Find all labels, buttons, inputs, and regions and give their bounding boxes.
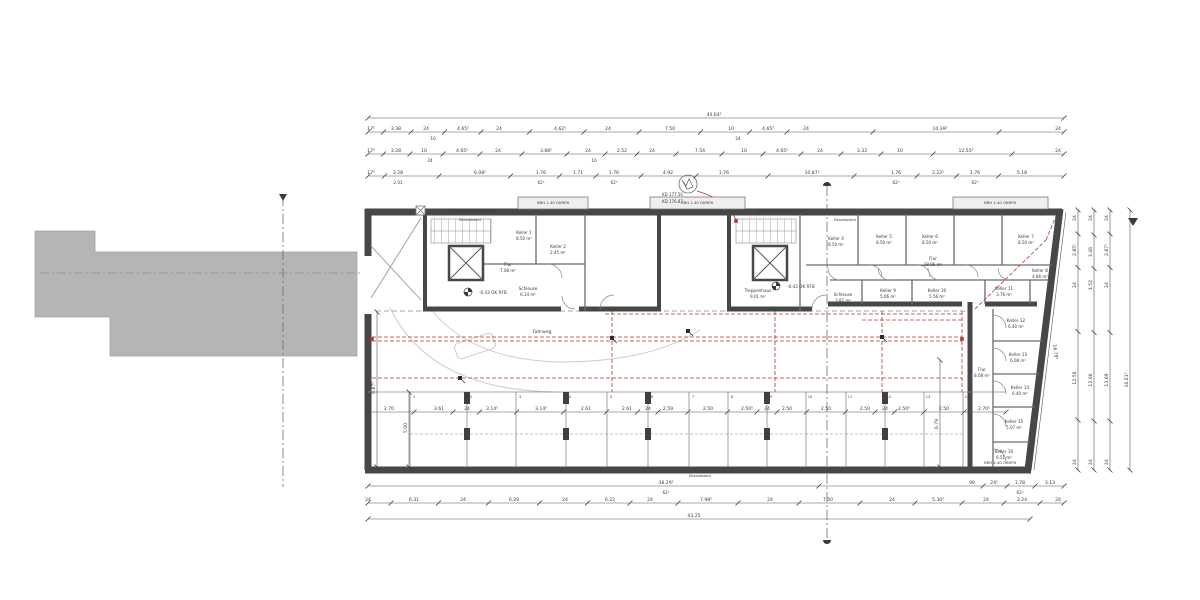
structural-column: [645, 392, 651, 404]
room-name: Keller 5: [876, 234, 892, 239]
dim-label: 24: [1104, 215, 1110, 221]
dim-label: 3.33: [857, 148, 867, 154]
dim-label: 2.50: [939, 406, 949, 412]
annotation-label: Sicherheitstreppenraum: [450, 208, 501, 213]
dim-label: 4.65⁵: [457, 126, 469, 132]
dim-label: 1.76: [536, 170, 546, 176]
dimensions-and-labels: 44.64⁵17⁵3.38244.65⁵244.62⁵247.50104.65⁵…: [365, 112, 1132, 522]
dim-label: 10: [421, 148, 427, 154]
dim-label: 4.65⁵: [762, 126, 774, 132]
stair-cores: [431, 219, 796, 280]
room-area: 3.76 m²: [996, 292, 1012, 297]
room-name: Keller 9: [880, 288, 896, 293]
dim-label: 6.79: [934, 419, 940, 429]
stall-number: 7: [692, 395, 694, 399]
room-area: 8.50 m²: [828, 242, 844, 247]
tree-icon-inner: [682, 179, 693, 189]
stall-number: 6: [651, 395, 654, 399]
dim-label: 24: [983, 497, 989, 503]
turning-arc: [390, 308, 555, 392]
dim-label: 12.56: [1072, 371, 1078, 384]
dim-label: 44.64⁵: [707, 112, 722, 118]
turning-arc: [430, 308, 700, 362]
dim-label: 4.62⁵: [554, 126, 566, 132]
room-name: Keller 13: [1009, 352, 1028, 357]
stall-number: 2: [470, 395, 472, 399]
red-marker: [960, 337, 964, 341]
gray-building-footprint: [35, 231, 357, 356]
dim-label: 1.78: [1015, 480, 1025, 486]
door-arc: [548, 264, 562, 278]
dim-label: 3.88⁵: [540, 148, 552, 154]
dim-label: 7.50: [665, 126, 675, 132]
dim-label: 24: [562, 497, 568, 503]
dim-label: 24: [1072, 215, 1078, 221]
room-area: 8.50 m²: [876, 240, 892, 245]
stall-number: 5: [610, 395, 612, 399]
dim-label: 1.76: [609, 170, 619, 176]
dim-label: 7.54: [695, 148, 705, 154]
dim-label: 7.50: [823, 497, 833, 503]
room-name: Flur: [504, 262, 512, 267]
dim-label: 17⁵: [367, 170, 375, 176]
room-name: Keller 1: [516, 230, 532, 235]
door-arc: [993, 315, 1006, 328]
structural-column: [563, 392, 569, 404]
dim-label: 2.50: [821, 406, 831, 412]
dim-label: 6.22: [605, 497, 615, 503]
dim-label: 3.28: [391, 148, 401, 154]
dim-label: 3.14⁵: [535, 406, 547, 412]
dim-label: 2.59: [663, 406, 673, 412]
room-area: 8.50 m²: [516, 236, 532, 241]
dim-label: 1.76: [970, 170, 980, 176]
dim-label: 24: [1104, 282, 1110, 288]
annotation-label: Brandwand: [459, 217, 481, 222]
dim-label: 10: [728, 126, 734, 132]
level-marker-icon: [464, 292, 468, 296]
stall-number: 8: [731, 395, 734, 399]
dim-label: 2.70: [384, 406, 394, 412]
dim-label: 3.24: [1017, 497, 1027, 503]
stall-number: 4: [569, 395, 572, 399]
dim-label: 2.22⁵: [932, 170, 944, 176]
annotation-label: BRH 1.40 OKRFB: [984, 460, 1016, 465]
dim-label: 17⁵: [367, 148, 375, 154]
structural-column: [563, 428, 569, 440]
survey-flag-stem: [612, 338, 617, 343]
neighbor-building-mass: [35, 231, 365, 356]
section-marker-icon: [279, 194, 287, 201]
red-marker: [370, 337, 374, 341]
dim-label: 24: [1055, 497, 1061, 503]
dim-label: 1.71: [573, 170, 583, 176]
door-arc: [993, 348, 1006, 361]
ramp-opening: [362, 256, 373, 314]
dim-label: 24: [817, 148, 823, 154]
structural-column: [464, 392, 470, 404]
stall-number: 14: [965, 395, 970, 399]
dim-label: 10: [897, 148, 903, 154]
dim-label: 4.65⁵: [456, 148, 468, 154]
dim-label: 1.52: [1088, 280, 1094, 290]
annotation-label: Brandwand: [834, 217, 856, 222]
annotation-label: Brandwand: [689, 473, 711, 478]
dim-label: 3.61: [434, 406, 444, 412]
dim-label: 24: [585, 148, 591, 154]
level-markers: [464, 282, 780, 296]
dim-label: 24: [1088, 215, 1094, 221]
room-area: 2.45 m²: [550, 250, 566, 255]
stall-number: 1: [413, 395, 415, 399]
dim-label: 3.13: [1045, 480, 1055, 486]
floor-plan-drawing: 44.64⁵17⁵3.38244.65⁵244.62⁵247.50104.65⁵…: [0, 0, 1200, 600]
wall-slanted-right: [1028, 209, 1060, 470]
dim-label: 5.18: [1017, 170, 1027, 176]
dim-label: 6.08⁵: [474, 170, 486, 176]
dim-label: 9.87⁵: [371, 382, 377, 394]
room-area: 6.08 m²: [1010, 358, 1026, 363]
annotation-label: -0.43 OK RFB: [787, 284, 815, 289]
dim-label: 24: [1104, 459, 1110, 465]
room-name: Keller 7: [1018, 234, 1034, 239]
structural-column: [882, 392, 888, 404]
room-name: Schleuse: [834, 292, 853, 297]
red-marker: [734, 219, 738, 223]
dim-label: 3.38: [391, 126, 401, 132]
dim-label: 2.50⁵: [898, 406, 910, 412]
annotation-label: KD 176.87: [662, 199, 683, 204]
room-name: Keller 12: [1007, 318, 1026, 323]
room-area: 5.07 m²: [1006, 425, 1022, 430]
structural-column: [464, 428, 470, 440]
dim-label: 24: [605, 126, 611, 132]
dim-label: 13.69: [1104, 373, 1110, 386]
dim-label: 3.14⁵: [486, 406, 498, 412]
annotation-label: KD 177.50: [662, 192, 683, 197]
door-arc: [828, 268, 840, 280]
room-name: Keller 8: [1032, 268, 1048, 273]
dim-label: 38.29⁵: [659, 480, 674, 486]
dim-label: 24: [803, 126, 809, 132]
structural-column: [764, 392, 770, 404]
room-area: 4.86 m²: [1032, 274, 1048, 279]
dim-label: 5.00: [403, 423, 409, 433]
room-area: 5.56 m²: [929, 294, 945, 299]
dim-label: 24: [365, 497, 371, 503]
dim-label: 10: [741, 148, 747, 154]
dim-label: 24: [889, 497, 895, 503]
dim-sublabel: 62⁵: [610, 180, 617, 185]
dim-label: 24: [767, 497, 773, 503]
dim-label: 1.76: [891, 170, 901, 176]
dim-label: 17⁵: [367, 126, 375, 132]
dim-label: 4.65⁵: [776, 148, 788, 154]
door-arc: [812, 295, 826, 309]
dim-label: 16.61⁵: [1124, 372, 1130, 387]
section-marker-icon: [823, 540, 831, 544]
dim-label: 6.31: [409, 497, 419, 503]
stall-number: 3: [519, 395, 521, 399]
dim-label: 24: [423, 126, 429, 132]
dim-label: 2.87⁵: [1104, 244, 1110, 256]
partition-walls: [368, 214, 1052, 467]
room-area: 6.40 m²: [1008, 324, 1024, 329]
dim-label: 24: [1055, 126, 1061, 132]
dim-label: 12.06: [1088, 373, 1094, 386]
room-name: Keller 16: [995, 449, 1014, 454]
structural-column: [882, 428, 888, 440]
dim-label: 2.70⁵: [978, 406, 990, 412]
room-area: 6.14 m²: [520, 292, 536, 297]
stall-number: 11: [848, 395, 853, 399]
dim-label: 6.29: [509, 497, 519, 503]
dim-label: 7.98⁵: [700, 497, 712, 503]
room-name: Keller 14: [1011, 385, 1030, 390]
dim-label: 10.87⁵: [805, 170, 820, 176]
dim-label: 24: [647, 497, 653, 503]
dim-label: 16.79⁵: [1051, 344, 1059, 360]
dim-sublabel: 62⁵: [1016, 490, 1023, 495]
floor-plan-page: 44.64⁵17⁵3.38244.65⁵244.62⁵247.50104.65⁵…: [0, 0, 1200, 600]
level-marker-icon: [776, 282, 780, 286]
room-name: Schleuse: [519, 286, 538, 291]
stall-number: 10: [808, 395, 813, 399]
dim-sublabel: 24: [427, 158, 433, 163]
room-name: Flur: [978, 367, 986, 372]
car-outline: [454, 332, 497, 360]
room-area: 9.01 m²: [750, 294, 766, 299]
stall-number: 9: [770, 395, 773, 399]
room-area: 8.50 m²: [1018, 240, 1034, 245]
room-area: 8.50 m²: [922, 240, 938, 245]
dim-label: 2.50: [860, 406, 870, 412]
dim-label: 12.55⁵: [959, 148, 974, 154]
room-area: 18.96 m²: [924, 262, 943, 267]
structural-column: [764, 428, 770, 440]
dim-sublabel: 62⁵: [892, 180, 899, 185]
stall-number: 13: [926, 395, 931, 399]
dim-label: 98: [969, 480, 975, 486]
annotation-label: BRH 1.40 OKRFB: [984, 200, 1016, 205]
dim-label: 24: [649, 148, 655, 154]
dim-label: 24: [1088, 459, 1094, 465]
ramp-line: [371, 218, 421, 298]
annotation-label: BRH 1.40 OKRFB: [681, 200, 713, 205]
dim-label: 4.92: [663, 170, 673, 176]
dim-label: 2.52: [617, 148, 627, 154]
dim-label: 2.61: [581, 406, 591, 412]
annotation-label: BRH 1.40 OKRFB: [537, 200, 569, 205]
dim-sublabel: 62⁵: [971, 180, 978, 185]
annotation-label: Sicherheitstreppenraum: [757, 208, 808, 213]
dim-label: 24¹: [990, 480, 998, 486]
dim-sublabel: 24: [735, 136, 741, 141]
door-arc: [562, 296, 575, 309]
dim-label: 24: [1055, 148, 1061, 154]
garage-sweeps: [390, 308, 700, 392]
level-marker-icon: [772, 286, 776, 290]
dim-sublabel: 62⁵: [537, 180, 544, 185]
room-name: Keller 4: [828, 236, 844, 241]
room-name: Keller 15: [1005, 419, 1024, 424]
dim-label: 2.50⁵: [741, 406, 753, 412]
room-area: 3.87 m²: [835, 298, 851, 303]
room-name: Keller 6: [922, 234, 938, 239]
room-name: Keller 10: [928, 288, 947, 293]
room-area: 5.06 m²: [880, 294, 896, 299]
door-arc: [966, 265, 978, 277]
dim-label: 3.46: [1088, 247, 1094, 257]
dim-label: 43.25: [687, 513, 700, 519]
annotation-label: Fahrweg: [533, 329, 552, 335]
section-marker-icon: [823, 182, 831, 186]
room-area: 6.40 m²: [1012, 391, 1028, 396]
dim-sublabel: 10: [591, 158, 597, 163]
ramp-line: [371, 246, 421, 300]
section-lines: [279, 182, 1138, 544]
dim-sublabel: 10: [430, 136, 436, 141]
room-name: Flur: [929, 256, 937, 261]
level-marker-icon: [468, 288, 472, 292]
dim-sublabel: 2.01: [393, 180, 403, 185]
room-name: Keller 11: [995, 286, 1014, 291]
dim-label: 2.85⁵: [1072, 244, 1078, 256]
room-name: Keller 2: [550, 244, 566, 249]
benchmark-icon: [1128, 218, 1138, 226]
dim-label: 24: [460, 497, 466, 503]
annotation-label: -0.43 OK RFB: [479, 290, 507, 295]
dim-label: 24: [1072, 282, 1078, 288]
room-area: 7.08 m²: [500, 268, 516, 273]
dim-label: 2.61: [622, 406, 632, 412]
dim-sublabel: 62⁵: [662, 490, 669, 495]
dim-label: 24: [496, 126, 502, 132]
survey-flag-stem: [460, 378, 465, 383]
dim-label: 24: [495, 148, 501, 154]
dim-label: 5.30⁵: [932, 497, 944, 503]
door-arc: [998, 268, 1010, 280]
room-area: 8.08 m²: [974, 373, 990, 378]
room-name: Treppenhaus: [744, 288, 772, 293]
dim-label: 24: [1072, 459, 1078, 465]
dim-label: 10.39⁵: [933, 126, 948, 132]
dim-label: 1.76: [719, 170, 729, 176]
structural-column: [645, 428, 651, 440]
dim-label: 2.50: [703, 406, 713, 412]
dim-label: 3.28: [393, 170, 403, 176]
dim-label: 2.50: [782, 406, 792, 412]
